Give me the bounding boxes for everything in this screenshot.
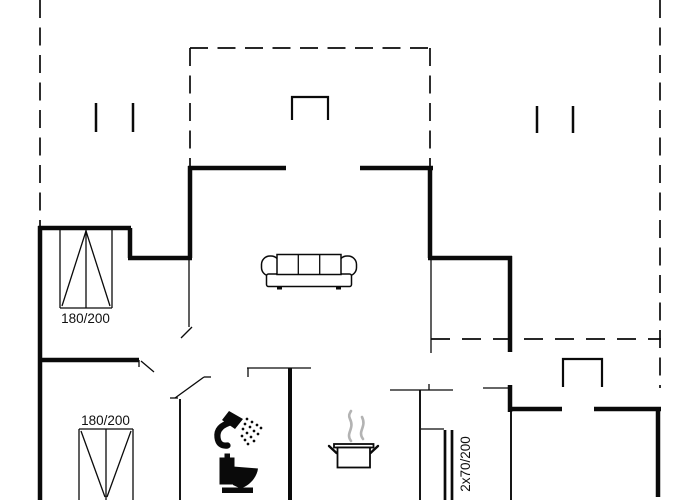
- roof-post-icon: [96, 103, 573, 133]
- window-top-left: 180/200: [60, 230, 112, 326]
- cooking-pot-icon: [329, 411, 378, 468]
- floorplan-drawing: 180/200 180/200 2x70/200: [0, 0, 700, 500]
- window-bottom-left-label: 180/200: [81, 413, 130, 428]
- chimney-icon-right: [563, 359, 602, 387]
- shower-icon: [217, 411, 262, 446]
- double-door-right: 2x70/200: [445, 430, 473, 500]
- sofa-icon: [262, 255, 357, 290]
- door-swing-marks: [139, 327, 211, 398]
- chimney-icon-top: [292, 97, 328, 120]
- window-top-left-label: 180/200: [61, 311, 110, 326]
- toilet-icon: [220, 454, 259, 494]
- shower-spray-dots: [241, 418, 263, 446]
- floorplan-canvas: 180/200 180/200 2x70/200: [0, 0, 700, 500]
- terrace-outline: [40, 0, 661, 388]
- double-door-label: 2x70/200: [458, 436, 473, 492]
- window-bottom-left: 180/200: [79, 413, 133, 500]
